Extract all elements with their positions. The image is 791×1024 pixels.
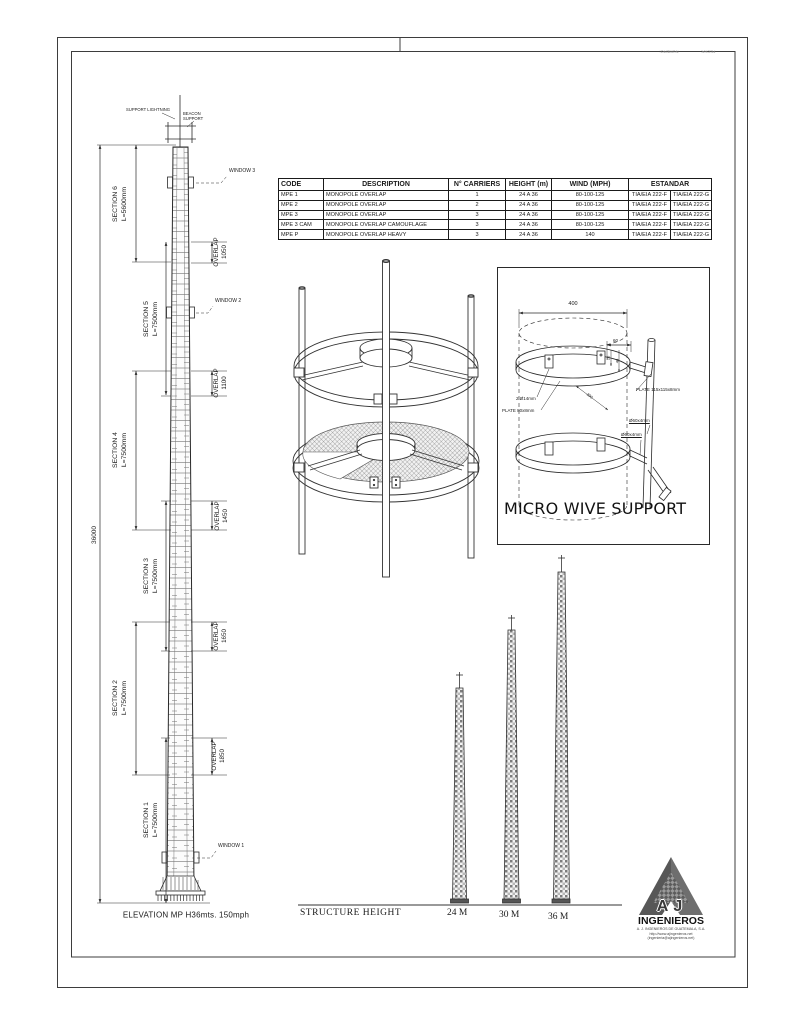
elevation-caption: ELEVATION MP H36mts. 150mph — [123, 910, 249, 919]
height-label-30m: 30 M — [499, 910, 519, 921]
table-row: MPE 3MONOPOLE OVERLAP324 A 3680-100-125T… — [279, 210, 712, 220]
border-stamp-left: NUMERO: — [660, 49, 679, 54]
logo-monogram: AJ — [657, 898, 687, 916]
section-1-label: SECTION 1L=7500mm — [143, 802, 161, 838]
window-3-label: WINDOW 3 — [229, 169, 255, 175]
logo-address-line3: (ingenieria@ajingenieros.net) — [648, 936, 695, 940]
window-2-label: WINDOW 2 — [215, 299, 241, 305]
overlap-label-1850: OVERLAP1850 — [211, 741, 227, 770]
micro-band-plate-label: PLATE 80x8mm — [502, 408, 534, 413]
col-wind: WIND (MPH) — [552, 179, 629, 191]
col-height: HEIGHT (m) — [506, 179, 552, 191]
col-carriers: N° CARRIERS — [449, 179, 506, 191]
table-row: MPE 2MONOPOLE OVERLAP224 A 3680-100-125T… — [279, 200, 712, 210]
spec-table-header-row: CODE DESCRIPTION N° CARRIERS HEIGHT (m) … — [279, 179, 712, 191]
height-label-24m: 24 M — [447, 908, 467, 919]
micro-dim-40: 40 — [614, 359, 619, 363]
border-stamp-right: FECHA: — [701, 49, 716, 54]
micro-plate-label: PLATE 115x115x8mm — [636, 387, 680, 392]
table-row: MPE PMONOPOLE OVERLAP HEAVY324 A 36140TI… — [279, 230, 712, 240]
overlap-label-1650: OVERLAP1650 — [213, 621, 229, 650]
logo-company-name: INGENIEROS — [638, 915, 704, 927]
col-description: DESCRIPTION — [324, 179, 449, 191]
support-lightning-label: SUPPORT LIGHTNING — [126, 108, 170, 113]
logo-address-line2: http://www.ajingenieros.net — [650, 931, 693, 935]
beacon-support-label: BEACON SUPPORT — [183, 112, 204, 122]
logo-address-line1: A. J. INGENIEROS DE GUATEMALA, S.A. — [637, 927, 705, 931]
window-1-label: WINDOW 1 — [218, 844, 244, 850]
section-2-label: SECTION 2L=7500mm — [112, 680, 130, 716]
micro-dim-60: 60 — [613, 338, 618, 343]
micro-pipe-upper-label: Ø60x4mm — [629, 418, 650, 423]
table-row: MPE 1MONOPOLE OVERLAP124 A 3680-100-125T… — [279, 191, 712, 201]
micro-bolts-label: 2 Ø14mm — [516, 396, 536, 401]
height-label-36m: 36 M — [548, 912, 568, 923]
structure-height-title: STRUCTURE HEIGHT — [300, 908, 401, 919]
height-comparison-drawing — [298, 555, 622, 905]
overlap-label-1450: OVERLAP1450 — [214, 501, 230, 530]
drawing-sheet: { "sheet": { "stamp_left": "NUMERO:", "s… — [0, 0, 791, 1024]
section-3-label: SECTION 3L=7500mm — [143, 558, 161, 594]
overlap-label-1050: OVERLAP1050 — [213, 237, 229, 266]
overall-height-dim: 36000 — [91, 526, 99, 544]
micro-pipe-lower-label: Ø60x4mm — [621, 432, 642, 437]
col-code: CODE — [279, 179, 324, 191]
table-row: MPE 3 CAMMONOPOLE OVERLAP CAMOUFLAGE324 … — [279, 220, 712, 230]
section-4-label: SECTION 4L=7500mm — [112, 432, 130, 468]
spec-table: CODE DESCRIPTION N° CARRIERS HEIGHT (m) … — [278, 178, 712, 240]
section-6-label: SECTION 6L=5600mm — [112, 186, 130, 222]
section-5-label: SECTION 5L=7500mm — [143, 301, 161, 337]
overlap-label-1100: OVERLAP1100 — [213, 368, 229, 397]
micro-dim-400: 400 — [568, 301, 577, 307]
col-estandar: ESTANDAR — [629, 179, 712, 191]
micro-support-title: MICRO WIVE SUPPORT — [504, 500, 686, 518]
platform-drawing — [293, 260, 479, 578]
micro-dim-20: 20 — [605, 356, 610, 360]
